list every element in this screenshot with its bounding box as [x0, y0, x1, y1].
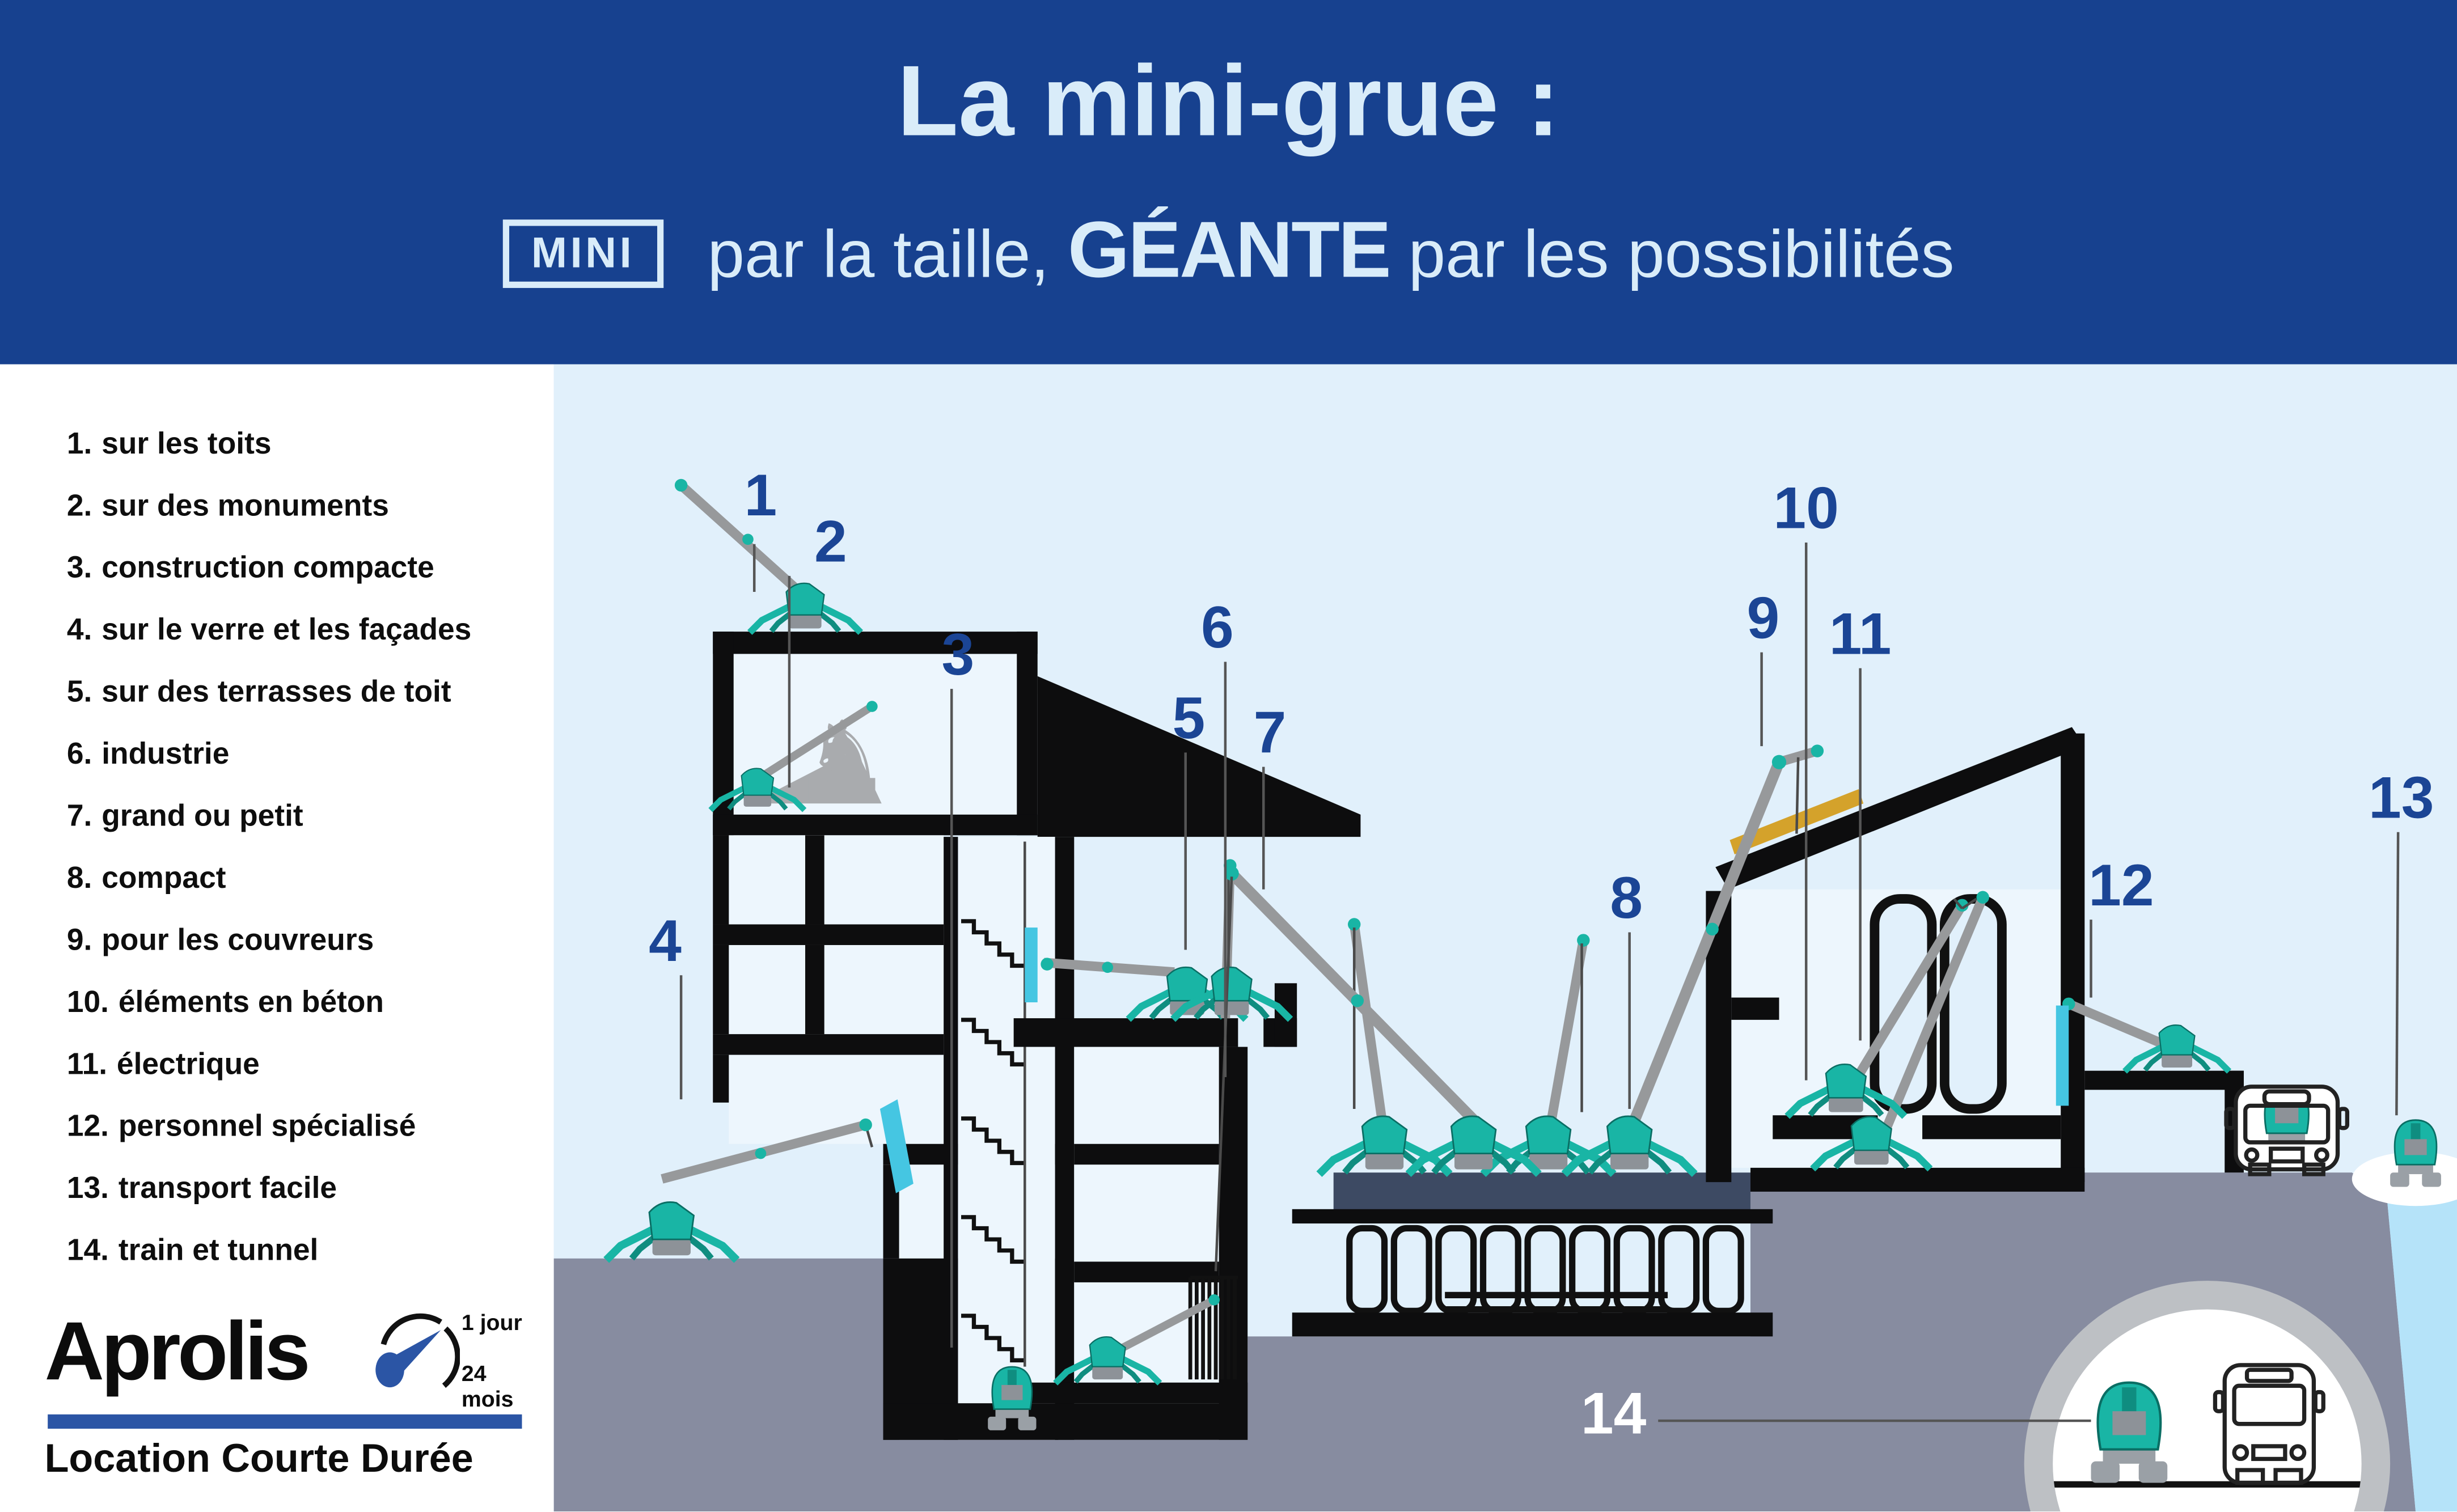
logo-tagline: Location Courte Durée: [45, 1437, 532, 1483]
use-case-label: sur des monuments: [102, 490, 389, 523]
use-case-number: 3.: [67, 552, 92, 586]
use-case-label: sur le verre et les façades: [102, 614, 471, 647]
use-case-label: sur les toits: [102, 428, 271, 461]
use-case-item-14: 14.train et tunnel: [67, 1235, 554, 1268]
use-case-item-8: 8.compact: [67, 862, 554, 896]
annex-ledge: [2084, 1071, 2244, 1090]
use-case-item-2: 2.sur des monuments: [67, 490, 554, 523]
brand-name: Aprolis: [45, 1306, 307, 1399]
use-case-item-5: 5.sur des terrasses de toit: [67, 676, 554, 710]
header-banner: La mini-grue : MINI par la taille, GÉANT…: [0, 0, 2457, 365]
use-case-label: train et tunnel: [119, 1235, 319, 1268]
use-case-number: 1.: [67, 428, 92, 461]
page-subtitle: MINI par la taille, GÉANTE par les possi…: [0, 204, 2457, 296]
use-case-number: 2.: [67, 490, 92, 523]
use-case-number: 14.: [67, 1235, 109, 1268]
number-label-9: 9: [1747, 585, 1780, 651]
number-label-3: 3: [942, 622, 975, 688]
horse-statue-icon: ♞: [805, 702, 885, 806]
use-case-item-7: 7.grand ou petit: [67, 801, 554, 834]
use-case-label: transport facile: [119, 1172, 337, 1206]
use-case-item-12: 12.personnel spécialisé: [67, 1111, 554, 1144]
number-label-12: 12: [2088, 853, 2154, 918]
infographic-page: La mini-grue : MINI par la taille, GÉANT…: [0, 0, 2457, 1511]
speedometer-icon: [371, 1310, 460, 1413]
number-label-8: 8: [1610, 865, 1643, 931]
use-case-item-1: 1.sur les toits: [67, 428, 554, 461]
use-case-number: 7.: [67, 801, 92, 834]
use-case-item-3: 3.construction compacte: [67, 552, 554, 586]
use-case-label: grand ou petit: [102, 801, 303, 834]
duration-top: 1 jour: [462, 1310, 522, 1335]
mini-badge: MINI: [502, 219, 663, 288]
number-label-10: 10: [1773, 476, 1838, 541]
page-title: La mini-grue :: [0, 45, 2457, 159]
use-case-number: 10.: [67, 986, 109, 1020]
use-case-item-13: 13.transport facile: [67, 1172, 554, 1206]
use-case-label: compact: [102, 862, 226, 896]
duration-bottom: 24 mois: [462, 1360, 531, 1411]
ground-left: [554, 1259, 899, 1511]
number-label-13: 13: [2369, 765, 2434, 831]
use-case-label: électrique: [117, 1048, 260, 1082]
use-case-list: 1.sur les toits2.sur des monuments3.cons…: [0, 365, 554, 1268]
number-label-5: 5: [1172, 685, 1205, 751]
ground-mid: [872, 1440, 1302, 1511]
glass-panel-right: [2056, 1006, 2069, 1106]
aprolis-logo: Aprolis 1 jour 24 mois Location Courte D…: [45, 1306, 532, 1483]
use-case-number: 4.: [67, 614, 92, 647]
number-label-4: 4: [649, 908, 682, 974]
use-case-label: sur des terrasses de toit: [102, 676, 451, 710]
number-label-11: 11: [1829, 601, 1892, 667]
truck-transport: [2226, 1086, 2347, 1174]
ground-pit: [1247, 1336, 1773, 1511]
number-label-14: 14: [1581, 1381, 1647, 1447]
use-case-number: 8.: [67, 862, 92, 896]
number-label-7: 7: [1254, 700, 1287, 765]
number-label-1: 1: [745, 463, 777, 528]
use-case-item-11: 11.électrique: [67, 1048, 554, 1082]
use-case-label: personnel spécialisé: [119, 1111, 416, 1144]
subtitle-pre: par la taille,: [689, 217, 1068, 291]
use-case-number: 11.: [67, 1048, 107, 1082]
use-case-label: pour les couvreurs: [102, 924, 374, 958]
illustration-scene: ♞: [554, 365, 2457, 1511]
use-case-number: 6.: [67, 738, 92, 772]
use-case-item-4: 4.sur le verre et les façades: [67, 614, 554, 647]
terrace-slab: [1014, 1018, 1238, 1047]
use-case-number: 13.: [67, 1172, 109, 1206]
glass-panel-terrace: [1025, 927, 1037, 1002]
use-case-item-6: 6.industrie: [67, 738, 554, 772]
subtitle-giant-word: GÉANTE: [1068, 205, 1390, 294]
use-case-number: 9.: [67, 924, 92, 958]
use-case-item-9: 9.pour les couvreurs: [67, 924, 554, 958]
number-label-6: 6: [1201, 595, 1234, 660]
use-case-label: éléments en béton: [119, 986, 384, 1020]
use-case-label: construction compacte: [102, 552, 434, 586]
use-case-label: industrie: [102, 738, 229, 772]
subtitle-post: par les possibilités: [1390, 217, 1955, 291]
logo-underline-bar: [48, 1414, 522, 1429]
cross-section-drawing: ♞: [554, 365, 2457, 1511]
use-case-number: 5.: [67, 676, 92, 710]
use-case-item-10: 10.éléments en béton: [67, 986, 554, 1020]
leader-line-13: [2396, 832, 2398, 1116]
use-case-number: 12.: [67, 1111, 109, 1144]
number-label-2: 2: [814, 509, 847, 575]
sidebar: 1.sur les toits2.sur des monuments3.cons…: [0, 365, 554, 1511]
